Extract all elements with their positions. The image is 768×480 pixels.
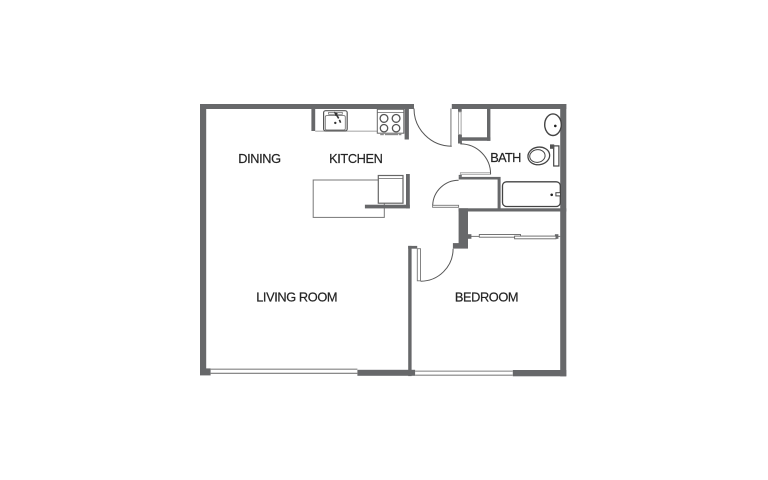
svg-text:BEDROOM: BEDROOM bbox=[455, 290, 518, 305]
svg-text:LIVING ROOM: LIVING ROOM bbox=[256, 290, 337, 305]
svg-text:BATH: BATH bbox=[490, 150, 521, 165]
svg-text:KITCHEN: KITCHEN bbox=[329, 151, 383, 166]
svg-text:DINING: DINING bbox=[238, 151, 280, 166]
